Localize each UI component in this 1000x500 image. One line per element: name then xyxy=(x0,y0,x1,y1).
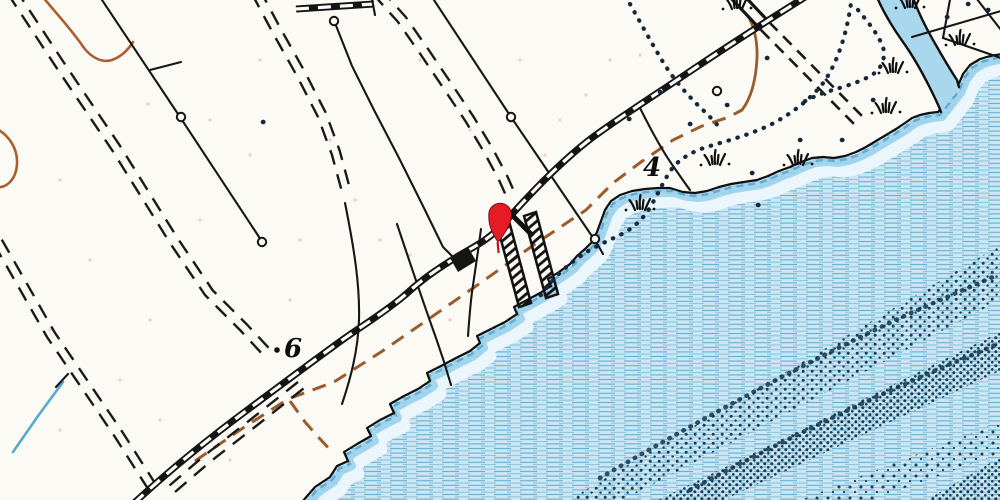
paper-speck xyxy=(58,428,61,431)
paper-speck xyxy=(146,102,149,105)
paper-speck xyxy=(408,253,411,256)
spot-elevation-6-label: 6 xyxy=(284,334,302,364)
pole-circle-icon xyxy=(591,235,599,243)
spot-elevation-6-dot xyxy=(274,347,280,353)
paper-speck xyxy=(118,378,121,381)
map-canvas: 6 4 xyxy=(0,0,1000,500)
paper-speck xyxy=(148,318,151,321)
pole-circle-icon xyxy=(258,238,266,246)
paper-speck xyxy=(353,198,356,201)
paper-speck xyxy=(558,118,561,121)
pole-circle-icon xyxy=(507,113,515,121)
paper-speck xyxy=(328,138,331,141)
paper-speck xyxy=(88,258,91,261)
paper-speck xyxy=(228,458,231,461)
paper-speck xyxy=(378,238,381,241)
topographic-map: 6 4 xyxy=(0,0,1000,500)
paper-speck xyxy=(198,218,201,221)
paper-speck xyxy=(638,53,641,56)
paper-speck xyxy=(288,298,291,301)
paper-speck xyxy=(248,153,251,156)
paper-speck xyxy=(418,58,421,61)
paper-speck xyxy=(48,328,51,331)
pin-stem xyxy=(498,242,499,253)
spot-elevation-4-label: 4 xyxy=(643,153,661,183)
paper-speck xyxy=(448,318,451,321)
paper-speck xyxy=(298,238,301,241)
paper-speck xyxy=(543,153,546,156)
paper-speck xyxy=(258,58,261,61)
paper-speck xyxy=(468,128,471,131)
paper-speck xyxy=(608,58,611,61)
paper-speck xyxy=(208,118,211,121)
paper-speck xyxy=(158,418,161,421)
paper-speck xyxy=(58,178,61,181)
paper-speck xyxy=(518,58,521,61)
paper-speck xyxy=(584,93,587,96)
pole-circle-icon xyxy=(177,113,185,121)
pole-circle-icon xyxy=(713,87,721,95)
pole-circle-icon xyxy=(330,17,338,25)
